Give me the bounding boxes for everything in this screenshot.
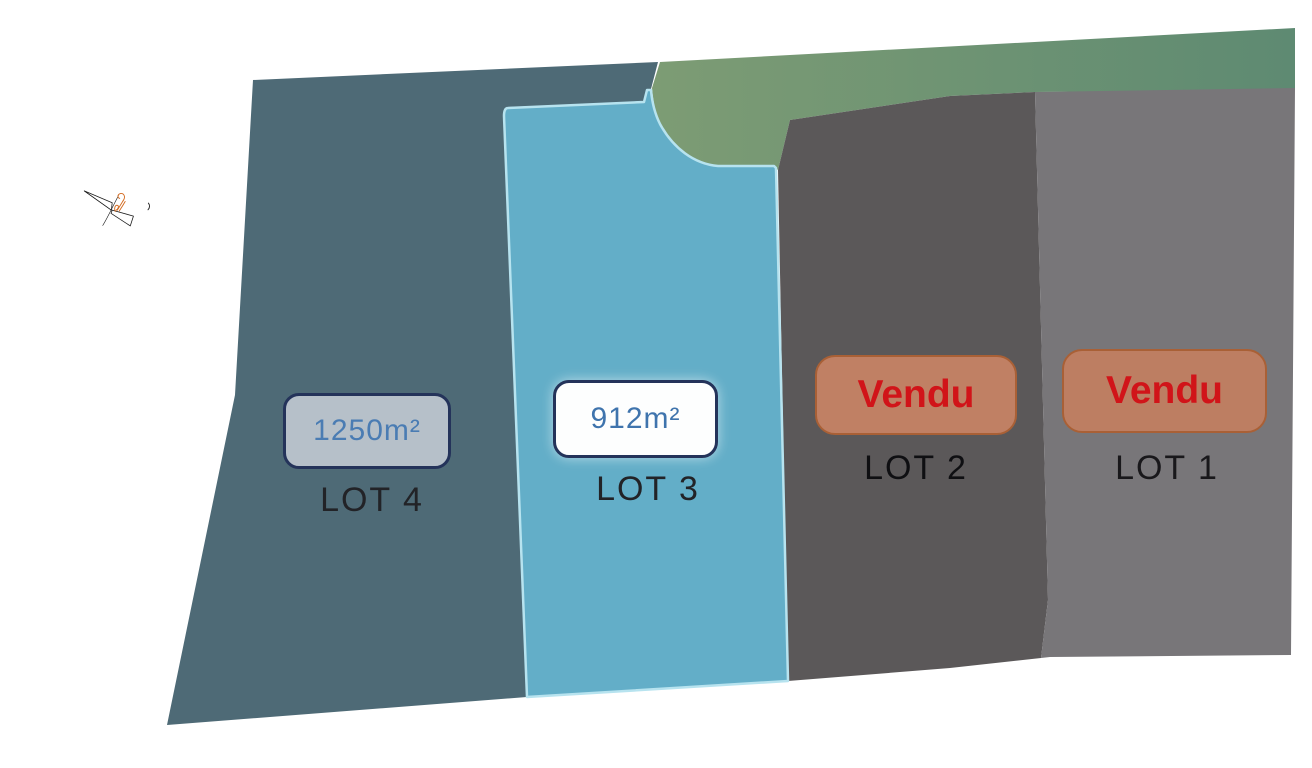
lot-1-label: LOT 1: [1087, 449, 1247, 488]
lot-4-size-badge[interactable]: 1250m²: [283, 393, 451, 469]
compass-orange-script: [115, 193, 125, 211]
lot-2-sold-text: Vendu: [857, 373, 974, 417]
lot-3-label: LOT 3: [568, 470, 728, 509]
lot-1-sold-text: Vendu: [1106, 369, 1223, 413]
lot-2-sold-badge: Vendu: [815, 355, 1017, 435]
lot-2-label: LOT 2: [836, 449, 996, 488]
lot-4-label: LOT 4: [292, 481, 452, 520]
north-arrow-icon: [25, 185, 210, 305]
compass-blade-lower: [111, 210, 133, 226]
tick-mark: [148, 203, 150, 210]
lot-3-size-text: 912m²: [590, 402, 680, 436]
lot-4-size-text: 1250m²: [313, 414, 421, 448]
lot-1-sold-badge: Vendu: [1062, 349, 1267, 433]
lot-3-size-badge[interactable]: 912m²: [553, 380, 718, 458]
lot-map: 1250m² LOT 4 912m² LOT 3 Vendu LOT 2 Ven…: [0, 0, 1312, 768]
